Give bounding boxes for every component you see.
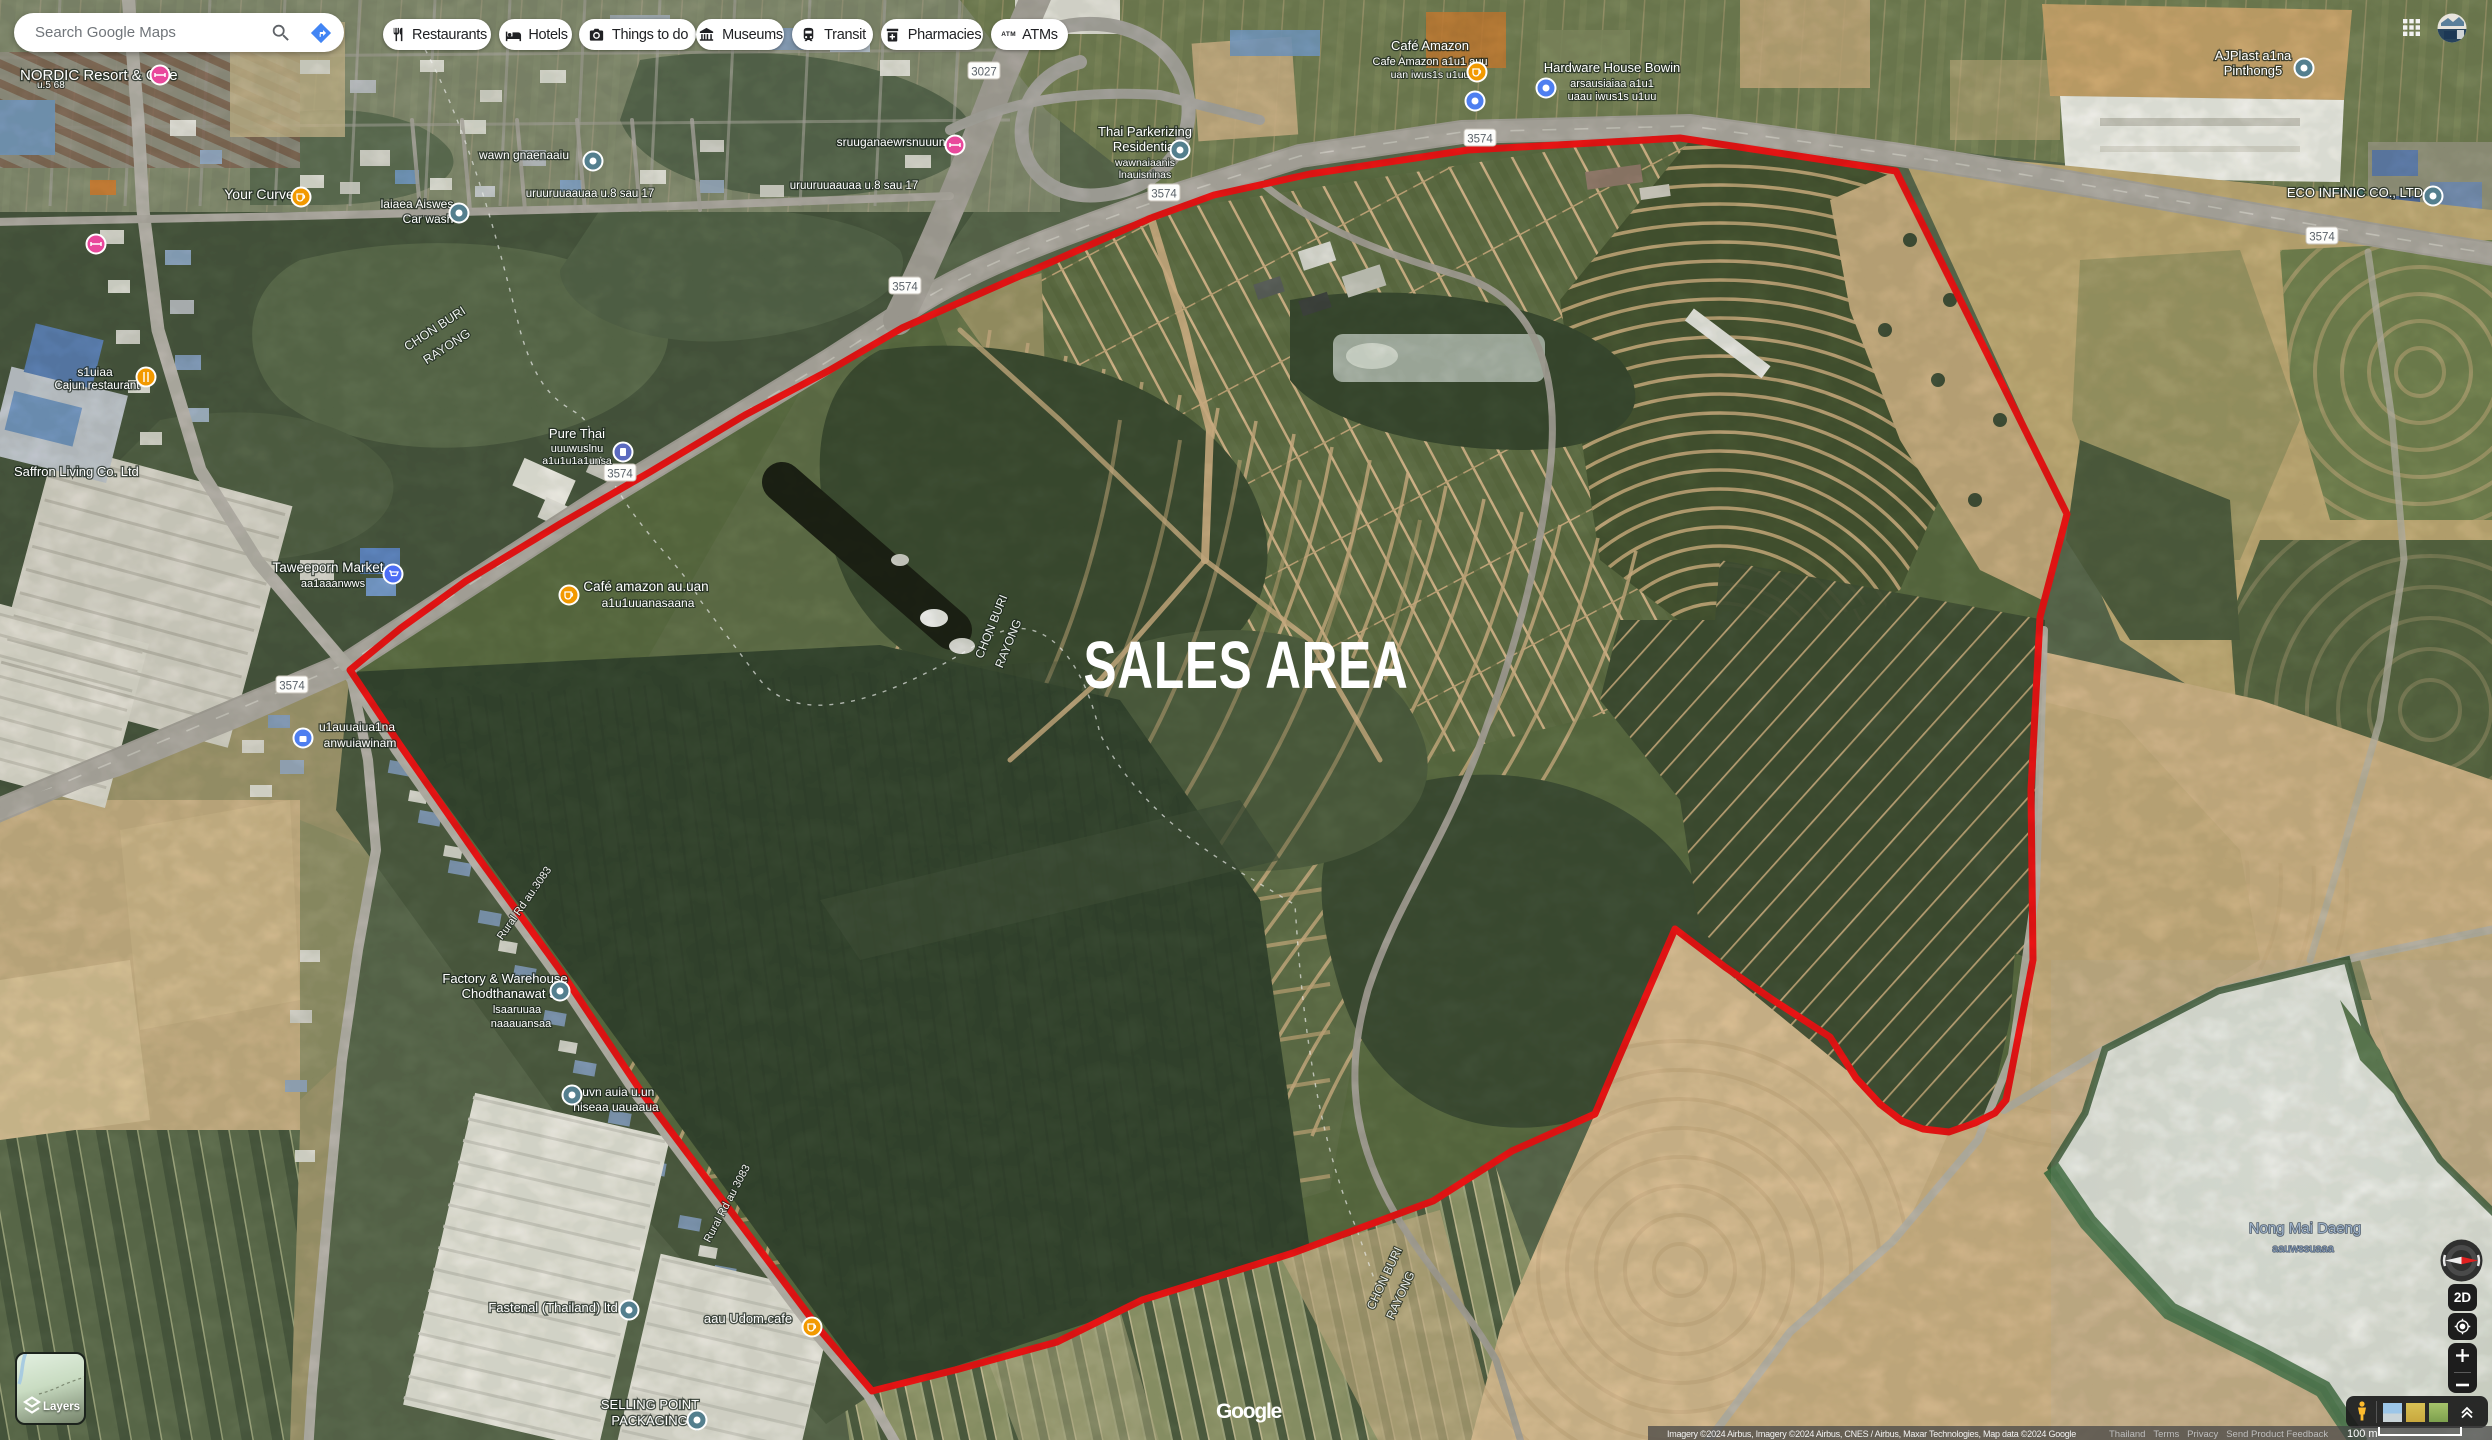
svg-text:Café amazon au.uan: Café amazon au.uan	[583, 579, 708, 594]
svg-text:Fastenal (Thailand) ltd: Fastenal (Thailand) ltd	[488, 1300, 617, 1315]
svg-text:u.5 68: u.5 68	[37, 80, 65, 91]
svg-text:Factory & Warehouse: Factory & Warehouse	[442, 971, 567, 986]
svg-text:wawn gnaenaaiu: wawn gnaenaaiu	[478, 148, 569, 162]
svg-text:aa1aaanwws: aa1aaanwws	[301, 578, 366, 590]
svg-text:naaauansaa: naaauansaa	[491, 1018, 552, 1030]
svg-text:lsaaruuaa: lsaaruuaa	[493, 1004, 542, 1016]
svg-text:aau Udom.cafe: aau Udom.cafe	[704, 1311, 792, 1326]
svg-text:3574: 3574	[1467, 134, 1493, 146]
svg-text:3574: 3574	[892, 282, 918, 294]
svg-text:Car wash: Car wash	[403, 212, 454, 226]
svg-text:3574: 3574	[607, 469, 633, 481]
svg-text:Pure Thai: Pure Thai	[549, 426, 605, 441]
svg-text:Chodthanawat 5: Chodthanawat 5	[462, 986, 557, 1001]
svg-text:Residential: Residential	[1113, 139, 1177, 154]
svg-text:Thai Parkerizing: Thai Parkerizing	[1098, 124, 1192, 139]
svg-text:Layers: Layers	[43, 1401, 80, 1413]
svg-text:AJPlast a1na: AJPlast a1na	[2215, 48, 2292, 63]
svg-text:anwuiawinam: anwuiawinam	[324, 736, 397, 750]
svg-text:laiaea Aiswes: laiaea Aiswes	[381, 197, 454, 211]
svg-text:3027: 3027	[971, 67, 997, 79]
svg-text:Google: Google	[1216, 1400, 1282, 1423]
svg-text:Your Curve: Your Curve	[224, 186, 294, 202]
svg-text:3574: 3574	[279, 681, 305, 693]
svg-text:uruuruuaauaa u.8 sau 17: uruuruuaauaa u.8 sau 17	[526, 188, 655, 200]
svg-text:wawnaiaanis: wawnaiaanis	[1114, 157, 1175, 169]
svg-text:uuuwuslnu: uuuwuslnu	[551, 443, 604, 455]
svg-text:a1u1u1a1unsa: a1u1u1a1unsa	[542, 455, 612, 467]
svg-text:sruuganaewrsnuuun: sruuganaewrsnuuun	[837, 135, 946, 149]
svg-text:PACKAGING...: PACKAGING...	[611, 1413, 698, 1428]
svg-text:s1uiaa: s1uiaa	[77, 365, 113, 379]
svg-text:ECO INFINIC CO., LTD: ECO INFINIC CO., LTD	[2287, 185, 2423, 200]
svg-text:SALES AREA: SALES AREA	[1083, 629, 1408, 703]
svg-text:aauwssuaaa: aauwssuaaa	[2272, 1243, 2335, 1255]
svg-text:uan iwus1s u1uu: uan iwus1s u1uu	[1391, 69, 1470, 81]
svg-text:u1auuaiua1na: u1auuaiua1na	[319, 720, 395, 734]
svg-text:a1u1uuanasaana: a1u1uuanasaana	[602, 596, 695, 610]
svg-text:uaau iwus1s u1uu: uaau iwus1s u1uu	[1568, 91, 1657, 103]
svg-text:lnauisninas: lnauisninas	[1119, 169, 1172, 181]
svg-text:Hardware House Bowin: Hardware House Bowin	[1544, 60, 1681, 75]
svg-text:Taweeporn Market: Taweeporn Market	[272, 560, 383, 575]
svg-text:SELLING POINT: SELLING POINT	[601, 1397, 699, 1412]
svg-text:Café Amazon: Café Amazon	[1391, 38, 1469, 53]
svg-text:Nong Mai Daeng: Nong Mai Daeng	[2249, 1220, 2362, 1237]
svg-text:arsausiaiaa a1u1: arsausiaiaa a1u1	[1570, 78, 1654, 90]
svg-text:uruuruuaauaa u.8 sau 17: uruuruuaauaa u.8 sau 17	[790, 180, 919, 192]
svg-text:usuvn auia u.un: usuvn auia u.un	[570, 1085, 655, 1099]
svg-text:3574: 3574	[1151, 189, 1177, 201]
svg-text:niseaa uauaaua: niseaa uauaaua	[573, 1100, 659, 1114]
svg-text:Saffron Living Co. Ltd: Saffron Living Co. Ltd	[14, 464, 139, 479]
svg-text:Pinthong5: Pinthong5	[2224, 63, 2283, 78]
svg-text:3574: 3574	[2309, 232, 2335, 244]
svg-text:Cajun restaurant: Cajun restaurant	[54, 380, 140, 392]
